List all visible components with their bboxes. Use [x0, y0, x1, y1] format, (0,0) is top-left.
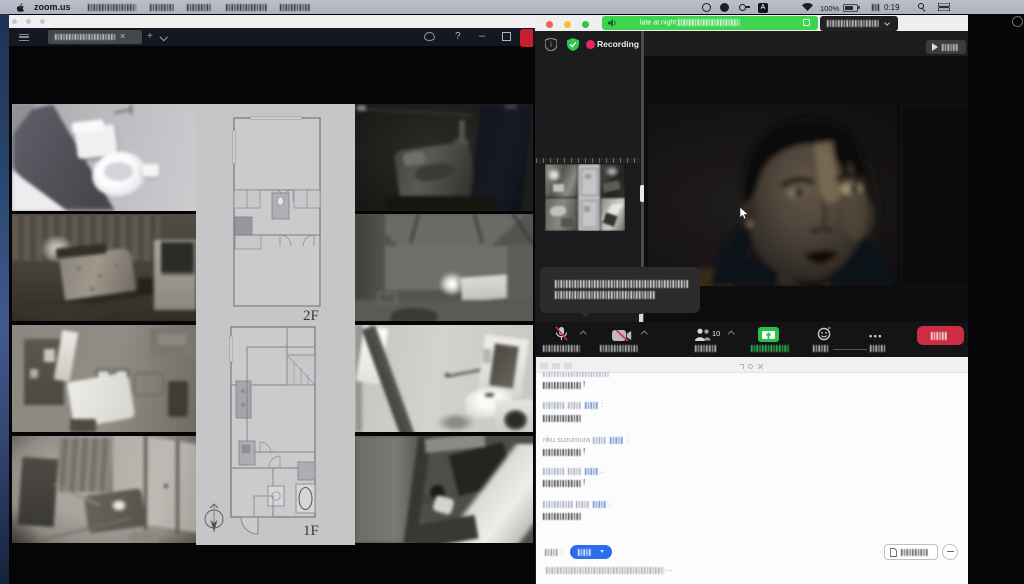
- svg-text:2F: 2F: [303, 308, 319, 324]
- svg-text:i: i: [550, 40, 552, 49]
- svg-text:1F: 1F: [303, 523, 319, 539]
